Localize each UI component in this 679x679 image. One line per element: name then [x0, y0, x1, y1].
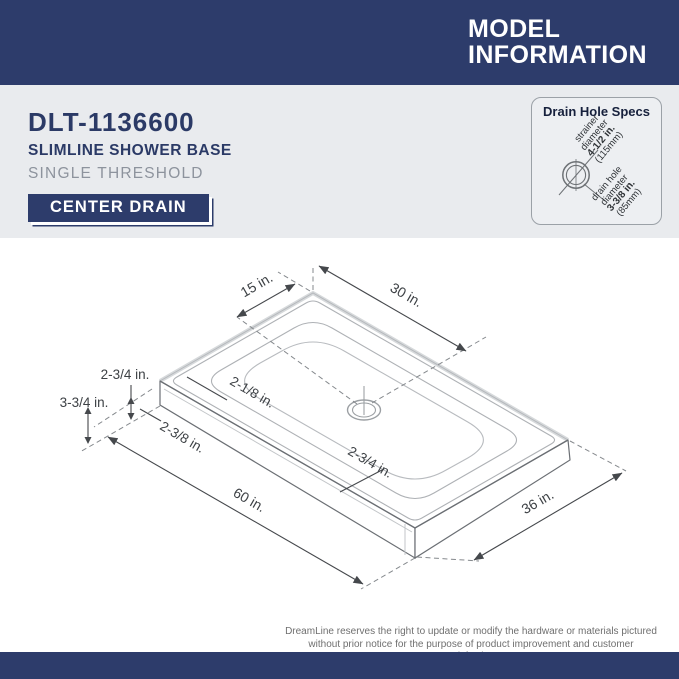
label-36in: 36 in. — [519, 486, 557, 517]
label-15in: 15 in. — [238, 269, 276, 300]
tick-front-lip — [140, 409, 161, 421]
page-title: MODEL INFORMATION — [468, 16, 647, 68]
center-drain-badge: CENTER DRAIN — [28, 194, 209, 222]
label-threshold-top: 2-3/4 in. — [101, 367, 150, 382]
disclaimer-line1: DreamLine reserves the right to update o… — [285, 626, 657, 639]
page-title-line2: INFORMATION — [468, 42, 647, 68]
product-block: DLT-1136600 SLIMLINE SHOWER BASE SINGLE … — [28, 107, 232, 222]
product-threshold-type: SINGLE THRESHOLD — [28, 165, 232, 183]
label-threshold-height: 3-3/4 in. — [60, 395, 109, 410]
shower-base-isometric-drawing: 15 in. 30 in. 60 in. 36 in. 2-1/8 in. 2-… — [0, 238, 679, 652]
base-body — [160, 293, 570, 558]
label-30in: 30 in. — [388, 279, 426, 310]
header-bar: MODEL INFORMATION — [0, 0, 679, 85]
product-model-number: DLT-1136600 — [28, 107, 232, 138]
footer-bar — [0, 652, 679, 679]
product-name: SLIMLINE SHOWER BASE — [28, 142, 232, 160]
page-title-line1: MODEL — [468, 16, 647, 42]
spec-sheet-page: MODEL INFORMATION DLT-1136600 SLIMLINE S… — [0, 0, 679, 679]
drain-hole-specs-box: Drain Hole Specs strainer diameter 4-1/2… — [531, 97, 662, 225]
